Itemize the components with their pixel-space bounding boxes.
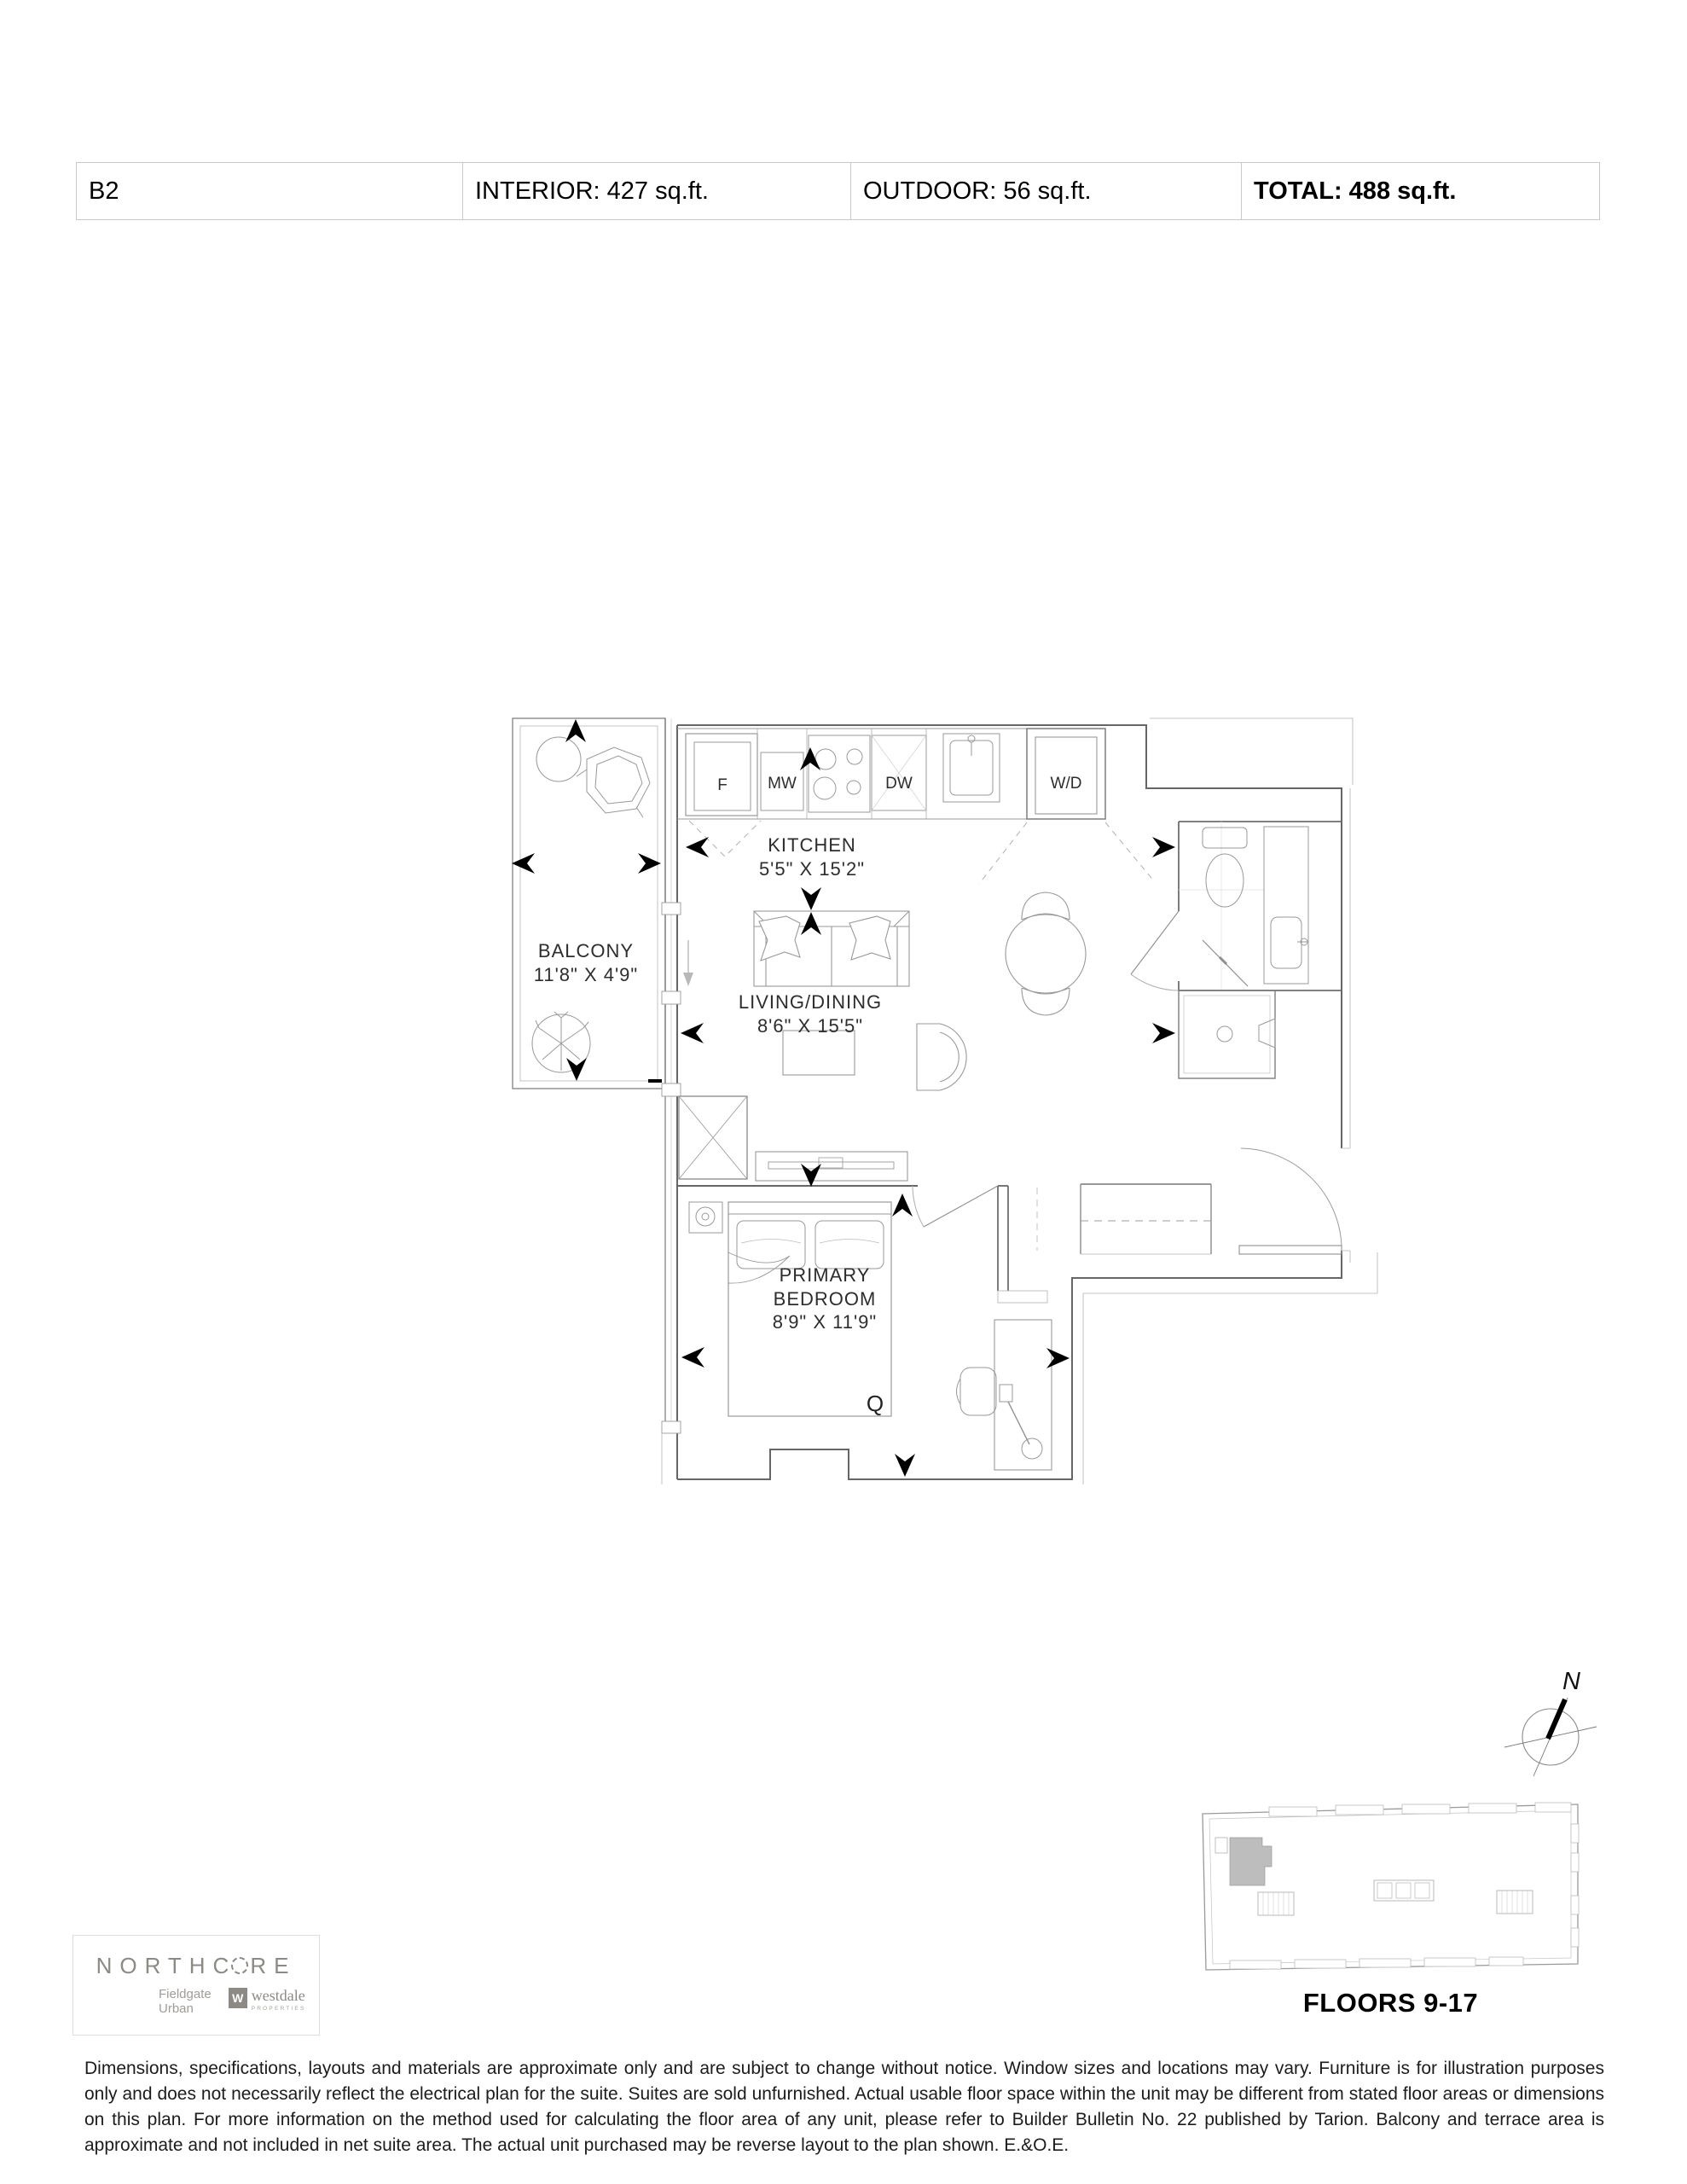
dishwasher-label: DW	[885, 775, 913, 793]
sofa	[754, 911, 909, 986]
bedroom-threshold	[998, 1291, 1047, 1303]
balcony-table	[536, 737, 581, 781]
entry-door	[1239, 1148, 1342, 1254]
legal-disclaimer: Dimensions, specifications, layouts and …	[84, 2056, 1604, 2158]
unit-spec-bar: B2 INTERIOR: 427 sq.ft. OUTDOOR: 56 sq.f…	[76, 162, 1600, 220]
tv-console	[756, 1152, 907, 1181]
dishwasher	[872, 735, 926, 810]
fieldgate-urban-logo: Fieldgate Urban	[159, 1988, 212, 2016]
living-dims: 8'6" X 15'5"	[757, 1015, 863, 1037]
unit-number: B2	[77, 163, 462, 219]
westdale-mark-icon: W	[229, 1988, 247, 2008]
dining-table	[1006, 892, 1086, 1015]
kitchen-sink	[943, 734, 1000, 802]
bathroom	[1131, 822, 1342, 1078]
coffee-table	[783, 1031, 855, 1075]
bed-size-label: Q	[867, 1391, 884, 1416]
washer-dryer-closet	[1027, 729, 1105, 819]
entry	[1037, 1148, 1342, 1254]
floors-range-label: FLOORS 9-17	[1192, 1988, 1589, 2018]
kitchen	[677, 729, 1155, 884]
compass-o-icon	[231, 1957, 248, 1974]
toilet	[1203, 828, 1247, 907]
balcony-chair	[577, 747, 650, 817]
living-label: LIVING/DINING	[739, 991, 882, 1013]
nightstand	[689, 1202, 722, 1233]
outdoor-area: OUTDOOR: 56 sq.ft.	[850, 163, 1241, 219]
balcony-label: BALCONY	[538, 940, 634, 961]
stove	[809, 735, 870, 812]
north-compass-icon: N	[1491, 1664, 1619, 1792]
wordmark-suffix: RE	[250, 1953, 296, 1978]
shower-door	[1203, 940, 1248, 986]
microwave-label: MW	[768, 775, 797, 793]
developer-logo-block: NORTHCRE Fieldgate Urban W westdale PROP…	[72, 1935, 320, 2036]
entry-closet	[1037, 1184, 1211, 1254]
bedroom-label-line2: BEDROOM	[774, 1288, 877, 1310]
desk-chair	[957, 1368, 997, 1415]
kitchen-label: KITCHEN	[768, 834, 856, 856]
neighbor-walls	[662, 718, 1377, 1484]
total-area: TOTAL: 488 sq.ft.	[1241, 163, 1599, 219]
kitchen-dims: 5'5" X 15'2"	[759, 858, 865, 880]
bathroom-door	[1131, 911, 1179, 990]
window-wall	[662, 718, 693, 1479]
desk	[994, 1320, 1052, 1470]
shower	[1179, 990, 1275, 1078]
balcony	[513, 718, 665, 1089]
balcony-door-slide-arrow	[683, 940, 693, 986]
northcore-wordmark: NORTHCRE	[73, 1953, 319, 1979]
fridge-label: F	[717, 776, 728, 794]
building-key-plan	[1192, 1793, 1589, 1977]
north-label: N	[1562, 1668, 1580, 1695]
bedroom-door	[913, 1186, 998, 1227]
vanity-sink	[1264, 827, 1308, 984]
bedroom-dims: 8'9" X 11'9"	[773, 1311, 877, 1333]
lounge-chair	[917, 1024, 966, 1090]
floor-plan-drawing: KITCHEN 5'5" X 15'2" LIVING/DINING 8'6" …	[486, 674, 1382, 1484]
plan-arrows	[512, 719, 1175, 1477]
westdale-logo: W westdale PROPERTIES	[229, 1988, 306, 2012]
balcony-dims: 11'8" X 4'9"	[534, 964, 638, 985]
wordmark-prefix: NORTHC	[96, 1953, 237, 1978]
fridge	[686, 734, 757, 816]
wardrobe-closet	[679, 1096, 747, 1179]
interior-area: INTERIOR: 427 sq.ft.	[462, 163, 850, 219]
bedroom-label-line1: PRIMARY	[780, 1264, 871, 1286]
washer-dryer-label: W/D	[1051, 775, 1082, 793]
